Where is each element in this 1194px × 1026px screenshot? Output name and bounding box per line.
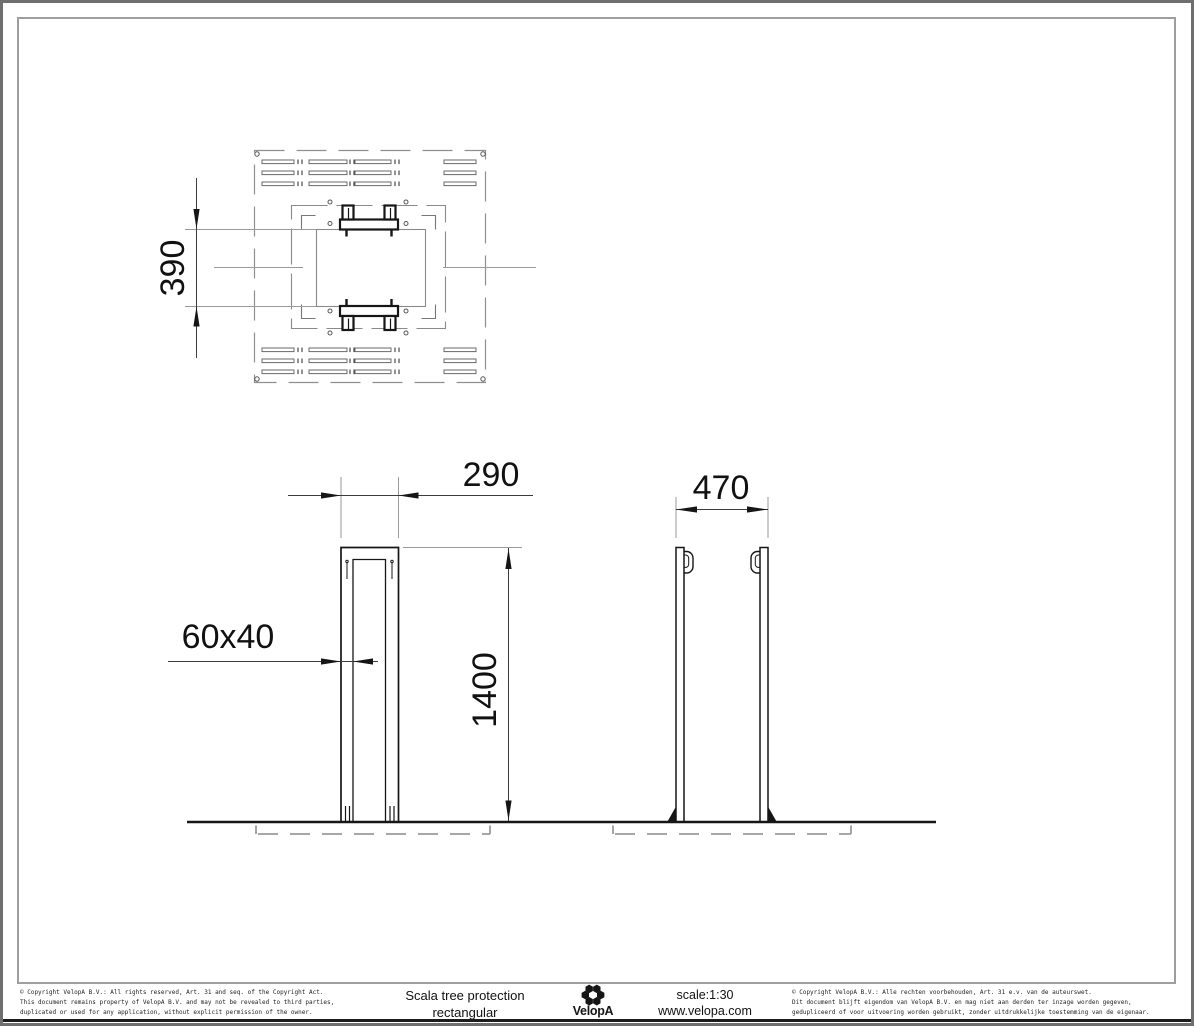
underground-dashed (256, 826, 851, 835)
dimension-290: 290 (288, 456, 533, 538)
corner-bolt-hole (255, 377, 259, 381)
scale-value: scale:1:30 (640, 987, 770, 1003)
dimension-470: 470 (676, 469, 768, 538)
velopa-flower-icon (578, 984, 608, 1006)
drawing-title: Scala tree protection rectangular (392, 987, 538, 1021)
front-view: 290 60x40 1400 (168, 456, 533, 822)
velopa-wordmark: VelopA (563, 1005, 623, 1017)
scale-block: scale:1:30 www.velopa.com (640, 987, 770, 1019)
corner-bolt-hole (255, 152, 259, 156)
grate-slats (262, 160, 476, 375)
copyright-nl-line3: gedupliceerd of voor uitvoering worden g… (792, 1008, 1150, 1018)
copyright-notice-nl: © Copyright VelopA B.V.: Alle rechten vo… (792, 988, 1150, 1018)
dimension-470-label: 470 (693, 469, 750, 507)
title-block-rule (3, 1019, 1191, 1022)
pit-opening (317, 230, 426, 307)
dimension-60x40-label: 60x40 (182, 618, 275, 656)
dimension-1400-label: 1400 (466, 652, 504, 728)
hoop-clips (684, 552, 760, 574)
dimension-290-label: 290 (463, 456, 520, 494)
dimension-1400: 1400 (403, 548, 522, 822)
copyright-en-line2: This document remains property of VelopA… (20, 998, 334, 1008)
copyright-en-line3: duplicated or used for any application, … (20, 1008, 334, 1018)
plan-view: 390 (154, 151, 536, 383)
website-url: www.velopa.com (640, 1003, 770, 1019)
hoop-bracket-top (340, 206, 398, 237)
corner-bolt-hole (481, 152, 485, 156)
product-name: Scala tree protection (392, 987, 538, 1004)
velopa-logo: VelopA (563, 984, 623, 1017)
drawing-sheet: 390 (0, 0, 1194, 1026)
corner-bolt-hole (481, 377, 485, 381)
hoop-bracket-bottom (340, 299, 398, 330)
copyright-nl-line2: Dit document blijft eigendom van VelopA … (792, 998, 1150, 1008)
copyright-notice-en: © Copyright VelopA B.V.: All rights rese… (20, 988, 334, 1018)
side-view: 470 (668, 469, 777, 822)
inner-corner-marks (302, 216, 436, 319)
ground (187, 822, 936, 834)
copyright-nl-line1: © Copyright VelopA B.V.: Alle rechten vo… (792, 988, 1150, 998)
dimension-390-label: 390 (154, 240, 192, 297)
copyright-en-line1: © Copyright VelopA B.V.: All rights rese… (20, 988, 334, 998)
technical-drawing: 390 (0, 0, 1194, 1026)
dimension-60x40: 60x40 (168, 618, 378, 665)
